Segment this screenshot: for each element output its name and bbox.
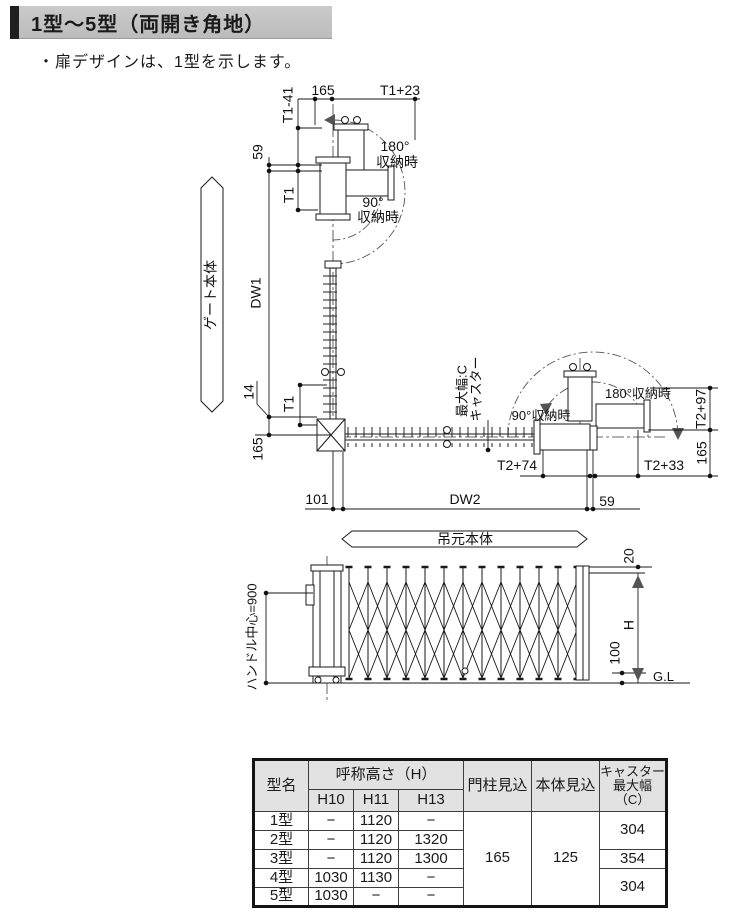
gate-body-label: ゲート本体 [203, 260, 219, 330]
dim-20: 20 [621, 548, 637, 564]
spec-table: 型名 呼称高さ（H） 門柱見込 本体見込 キャスター 最大幅 （C） H10 H… [252, 758, 668, 908]
label-caster-width-line1: キャスター [468, 356, 483, 421]
plan-view: 165 T1+23 T1-41 59 T1 DW1 14 T1 165 101 … [201, 82, 718, 547]
caster-header-line1: キャスター [600, 764, 665, 779]
dim-165-lower-left: 165 [250, 437, 266, 461]
gate-handle [306, 585, 314, 605]
label-caster-width-line2: 最大幅:C [454, 365, 469, 417]
cell-caster-width: 304 [600, 812, 667, 850]
caster-header-line3: （C） [615, 792, 650, 807]
plan-elevation-diagram: 165 T1+23 T1-41 59 T1 DW1 14 T1 165 101 … [0, 0, 740, 745]
dim-165-top: 165 [311, 82, 335, 98]
accordion-lattice [346, 566, 590, 680]
label-stow-180-top: 収納時 [376, 154, 418, 170]
cell-h13: 1320 [399, 831, 464, 850]
label-180deg-top: 180° [381, 138, 410, 154]
table-row: 4型 1030 1130 − 304 [254, 869, 667, 888]
col-header-pillar-depth: 門柱見込 [464, 760, 532, 812]
swing-arrow-icon [324, 114, 335, 126]
col-header-height-group: 呼称高さ（H） [309, 760, 464, 790]
cell-h13: 1300 [399, 850, 464, 869]
col-header-h10: H10 [309, 790, 354, 812]
catalog-page: { "header": { "title": "1型～5型（両開き角地）" },… [0, 0, 740, 919]
col-header-caster-width: キャスター 最大幅 （C） [600, 760, 667, 812]
cell-model: 5型 [254, 888, 309, 907]
ground-level-label: G.L [653, 669, 674, 684]
dim-14: 14 [241, 384, 257, 400]
cell-model: 4型 [254, 869, 309, 888]
cell-h11: − [354, 888, 399, 907]
gate-post [306, 565, 345, 683]
cell-pillar-depth: 165 [464, 812, 532, 907]
dim-101: 101 [305, 491, 329, 507]
dim-t1-minus-41: T1-41 [280, 87, 296, 124]
cell-body-depth: 125 [532, 812, 600, 907]
cell-h13: − [399, 869, 464, 888]
dim-100: 100 [607, 641, 623, 665]
cell-h10: − [309, 831, 354, 850]
dim-165-right: 165 [694, 441, 710, 465]
cell-h11: 1130 [354, 869, 399, 888]
dim-dw2: DW2 [449, 491, 480, 507]
col-header-body-depth: 本体見込 [532, 760, 600, 812]
col-header-model: 型名 [254, 760, 309, 812]
col-header-h11: H11 [354, 790, 399, 812]
cell-model: 3型 [254, 850, 309, 869]
cell-model: 1型 [254, 812, 309, 831]
dim-t1-upper: T1 [281, 187, 297, 204]
cell-h13: − [399, 888, 464, 907]
dim-59-upper: 59 [250, 144, 266, 160]
dim-t1-plus-23: T1+23 [380, 82, 420, 98]
dim-h: H [621, 620, 637, 630]
dim-59-lower: 59 [599, 493, 615, 509]
label-90deg-top: 90° [362, 194, 383, 210]
cell-caster-width: 354 [600, 850, 667, 869]
cell-h11: 1120 [354, 831, 399, 850]
hinge-body-label: 吊元本体 [437, 531, 493, 547]
cell-h10: 1030 [309, 888, 354, 907]
table-row: 3型 − 1120 1300 354 [254, 850, 667, 869]
dim-t1-lower: T1 [281, 396, 297, 413]
col-header-h13: H13 [399, 790, 464, 812]
cell-model: 2型 [254, 831, 309, 850]
dim-t2-plus-33: T2+33 [644, 457, 684, 473]
handle-center-label: ハンドル中心=900 [244, 583, 259, 690]
cell-h10: − [309, 850, 354, 869]
cell-h10: − [309, 812, 354, 831]
cell-h13: − [399, 812, 464, 831]
table-row: 1型 − 1120 − 165 125 304 [254, 812, 667, 831]
elevation-view: ハンドル中心=900 20 H 100 G.L [244, 548, 690, 700]
cell-h11: 1120 [354, 850, 399, 869]
caster-header-line2: 最大幅 [613, 778, 652, 793]
dim-t2-plus-97: T2+97 [693, 389, 709, 429]
cell-h11: 1120 [354, 812, 399, 831]
label-stow-90-right: 90°収納時 [512, 408, 571, 423]
dim-dw1: DW1 [248, 277, 264, 308]
cell-caster-width: 304 [600, 869, 667, 907]
label-stow-180-right: 180°収納時 [605, 386, 671, 401]
cell-h10: 1030 [309, 869, 354, 888]
dim-t2-plus-74: T2+74 [497, 457, 537, 473]
label-stow-90-top: 収納時 [357, 209, 399, 225]
